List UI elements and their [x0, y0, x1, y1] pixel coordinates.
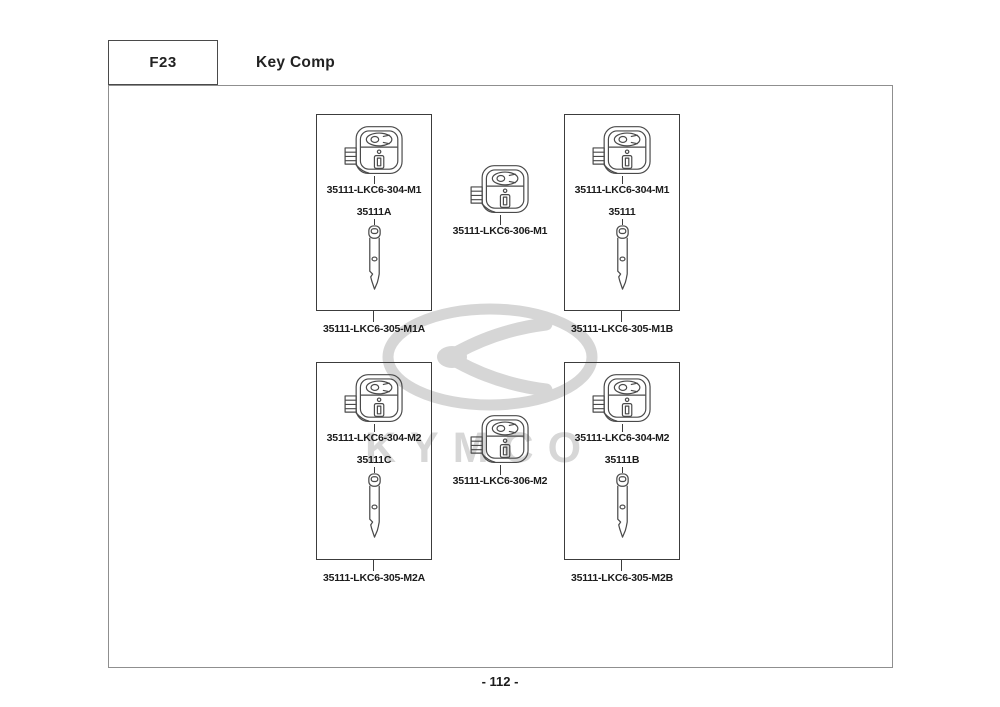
key-head-icon — [591, 373, 653, 424]
part-number: 35111-LKC6-304-M2 — [327, 432, 422, 445]
part-ref: 35111A — [357, 206, 391, 219]
key-head-icon — [343, 373, 405, 424]
key-blade-icon — [613, 225, 632, 291]
section-code: F23 — [149, 54, 176, 71]
page-number: - 112 - — [0, 674, 1000, 689]
leader-line — [622, 176, 623, 184]
key-kit-box-m1a: 35111-LKC6-304-M1 35111A — [316, 114, 432, 311]
key-blade-icon — [365, 473, 384, 539]
part-number: 35111-LKC6-304-M1 — [575, 184, 670, 197]
kit-part-number: 35111-LKC6-305-M2B — [537, 572, 707, 584]
catalog-page: F23 Key Comp KYMCO 35111-LKC6-304-M1 351… — [0, 0, 1000, 707]
section-code-box: F23 — [108, 40, 218, 85]
part-ref: 35111C — [357, 454, 391, 467]
key-kit-box-m2a: 35111-LKC6-304-M2 35111C — [316, 362, 432, 560]
leader-line — [621, 560, 622, 571]
key-kit-box-m1b: 35111-LKC6-304-M1 35111 — [564, 114, 680, 311]
part-number: 35111-LKC6-304-M2 — [575, 432, 670, 445]
key-item-306-m2: 35111-LKC6-306-M2 — [435, 414, 565, 488]
part-number: 35111-LKC6-306-M2 — [453, 475, 548, 488]
leader-line — [500, 465, 501, 475]
part-ref: 35111B — [605, 454, 639, 467]
leader-line — [500, 215, 501, 225]
leader-line — [621, 311, 622, 322]
key-head-icon — [469, 414, 531, 465]
key-head-icon — [591, 125, 653, 176]
key-blade-icon — [365, 225, 384, 291]
kit-part-number: 35111-LKC6-305-M1B — [537, 323, 707, 335]
key-kit-box-m2b: 35111-LKC6-304-M2 35111B — [564, 362, 680, 560]
page-title: Key Comp — [256, 54, 335, 72]
leader-line — [373, 560, 374, 571]
leader-line — [373, 311, 374, 322]
kit-part-number: 35111-LKC6-305-M1A — [289, 323, 459, 335]
kit-part-number: 35111-LKC6-305-M2A — [289, 572, 459, 584]
part-number: 35111-LKC6-304-M1 — [327, 184, 422, 197]
leader-line — [374, 176, 375, 184]
part-number: 35111-LKC6-306-M1 — [453, 225, 548, 238]
leader-line — [622, 424, 623, 432]
key-head-icon — [469, 164, 531, 215]
key-item-306-m1: 35111-LKC6-306-M1 — [435, 164, 565, 238]
key-head-icon — [343, 125, 405, 176]
leader-line — [374, 424, 375, 432]
part-ref: 35111 — [608, 206, 635, 219]
key-blade-icon — [613, 473, 632, 539]
